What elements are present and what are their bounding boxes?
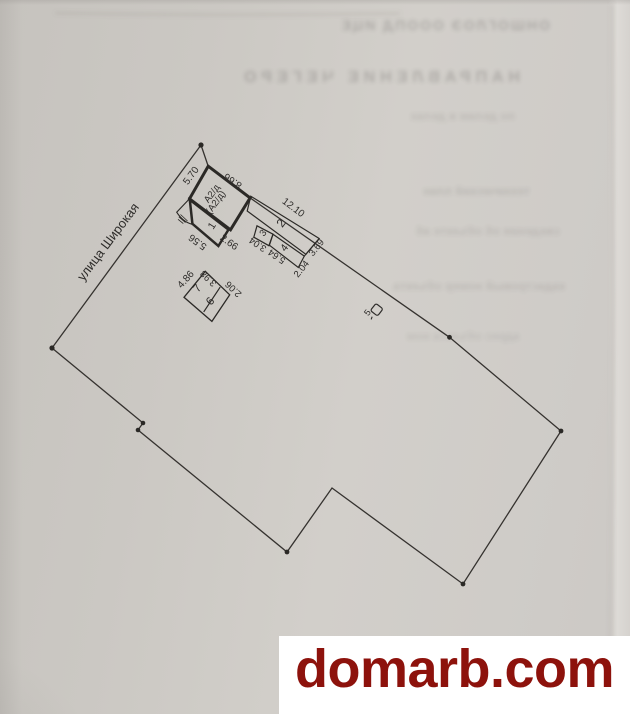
svg-text:ОНШОГЛОЭ ОООПД ИЦЕ: ОНШОГЛОЭ ОООПД ИЦЕ (340, 17, 550, 33)
svg-text:2.66: 2.66 (218, 233, 241, 254)
svg-text:6: 6 (204, 295, 217, 308)
svg-text:по делам в делах: по делам в делах (410, 109, 515, 123)
svg-text:технический план: технический план (423, 184, 530, 198)
svg-text:3.69: 3.69 (307, 237, 327, 258)
svg-text:2.04: 2.04 (292, 259, 312, 280)
svg-text:адрес объекта ном: адрес объекта ном (407, 329, 520, 343)
svg-text:7: 7 (191, 282, 204, 295)
svg-text:кадастровый номер объекта: кадастровый номер объекта (393, 279, 565, 293)
svg-text:3.98: 3.98 (198, 268, 219, 289)
svg-text:НАПРАВЛЕНИЕ ЧЕГЕРО: НАПРАВЛЕНИЕ ЧЕГЕРО (239, 69, 520, 86)
svg-text:2.06: 2.06 (223, 278, 244, 299)
svg-text:8.66: 8.66 (222, 170, 245, 190)
svg-text:сведения об объекте аб: сведения об объекте аб (416, 224, 560, 238)
